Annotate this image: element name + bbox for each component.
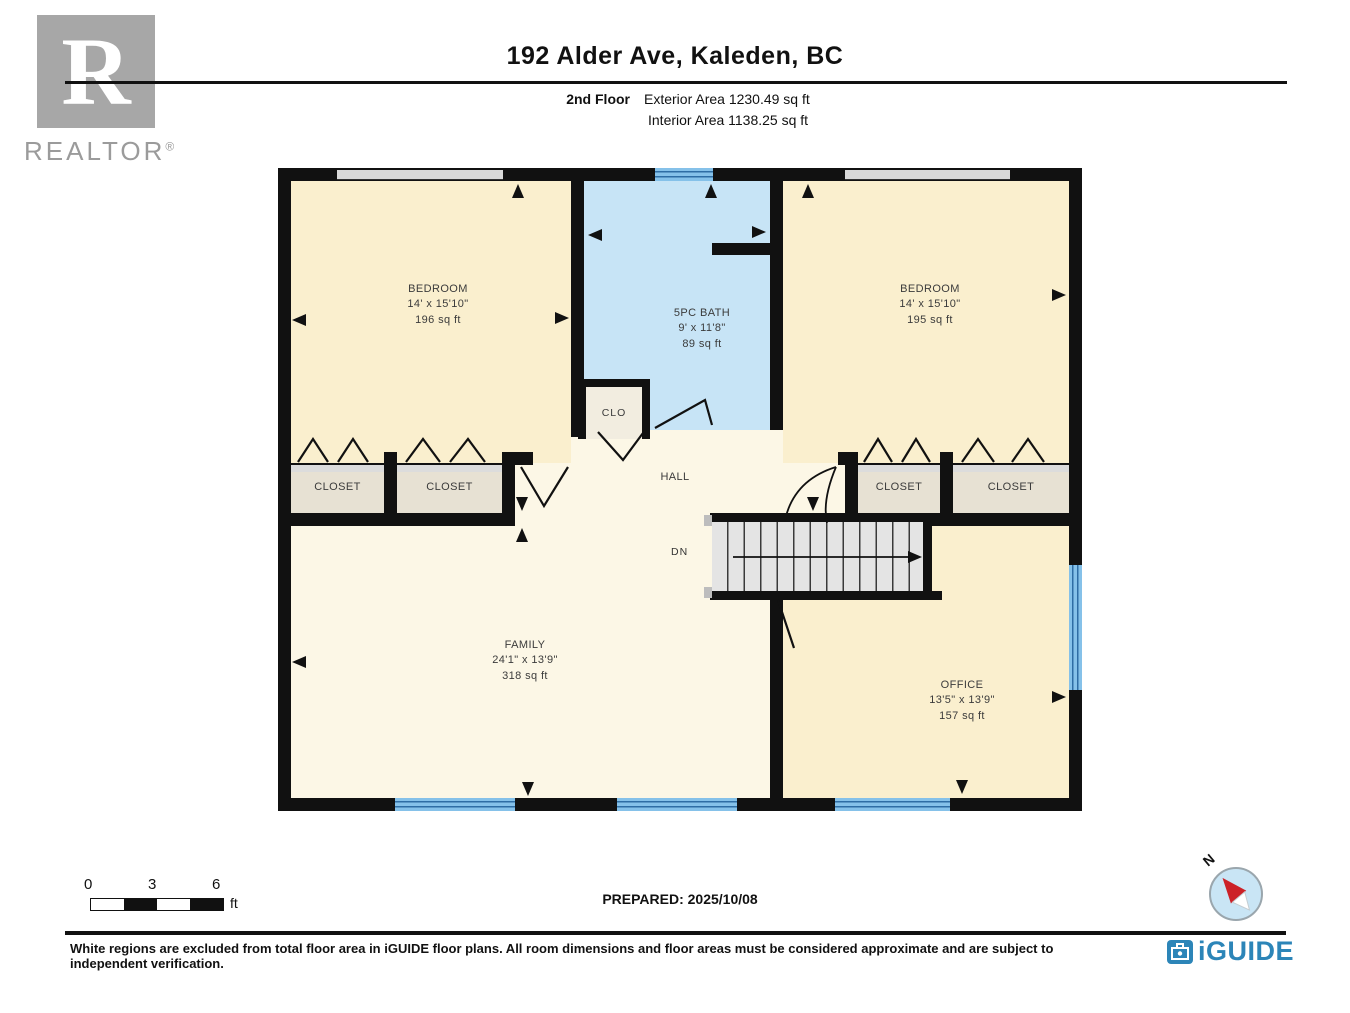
iguide-wordmark: iGUIDE <box>1198 936 1294 967</box>
scale-unit: ft <box>230 895 238 911</box>
exterior-area: Exterior Area 1230.49 sq ft <box>644 91 810 107</box>
measure-arrow <box>807 497 819 511</box>
measure-arrow <box>555 312 569 324</box>
scale-segment <box>190 899 223 910</box>
bifold-door-icon <box>864 439 930 462</box>
door-swing <box>778 600 794 648</box>
header-divider <box>65 81 1287 84</box>
bifold-door-icon <box>406 439 485 462</box>
scale-segment <box>91 899 124 910</box>
door-swing <box>826 467 836 523</box>
compass: N <box>1192 845 1276 934</box>
measure-arrow <box>956 780 968 794</box>
prepared-date: PREPARED: 2025/10/08 <box>278 891 1082 907</box>
measure-arrow <box>802 184 814 198</box>
measure-arrow <box>1052 289 1066 301</box>
scale-bar <box>90 898 224 911</box>
measure-arrow <box>752 226 766 238</box>
stairs-down-label: DN <box>671 546 703 558</box>
measure-arrow <box>512 184 524 198</box>
label-closet-3: CLOSET <box>858 480 940 495</box>
door-swing <box>655 400 712 428</box>
door-swing <box>521 467 568 506</box>
bifold-door-icon <box>962 439 1044 462</box>
label-family: FAMILY 24'1" x 13'9" 318 sq ft <box>425 638 625 684</box>
measure-arrow <box>705 184 717 198</box>
label-bedroom-right: BEDROOM 14' x 15'10" 195 sq ft <box>830 282 1030 328</box>
realtor-logo: R <box>37 15 155 128</box>
scale-segment <box>157 899 190 910</box>
label-bedroom-left: BEDROOM 14' x 15'10" 196 sq ft <box>338 282 538 328</box>
footer-divider <box>65 931 1286 935</box>
iguide-logo: iGUIDE <box>1166 936 1294 967</box>
bifold-door-icon <box>298 439 368 462</box>
label-closet-1: CLOSET <box>291 480 384 495</box>
stair-arrow-head <box>908 551 922 563</box>
floor-plan: CLO DN <box>278 168 1082 811</box>
measure-arrow <box>516 528 528 542</box>
iguide-icon <box>1166 938 1194 966</box>
measure-arrow <box>516 497 528 511</box>
label-bath: 5PC BATH 9' x 11'8" 89 sq ft <box>602 306 802 352</box>
realtor-logo-letter: R <box>61 24 130 120</box>
floor-label: 2nd Floor <box>520 91 630 107</box>
scale-tick-3: 3 <box>148 876 156 893</box>
measure-arrow <box>292 314 306 326</box>
scale-segment <box>124 899 157 910</box>
label-closet-2: CLOSET <box>397 480 502 495</box>
door-swing <box>598 432 643 460</box>
label-hall: HALL <box>625 470 725 485</box>
page-title: 192 Alder Ave, Kaleden, BC <box>275 42 1075 71</box>
interior-area: Interior Area 1138.25 sq ft <box>648 112 808 128</box>
compass-north-label: N <box>1200 851 1218 870</box>
scale-tick-6: 6 <box>212 876 220 893</box>
disclaimer-text: White regions are excluded from total fl… <box>70 941 1130 971</box>
label-office: OFFICE 13'5" x 13'9" 157 sq ft <box>862 678 1062 724</box>
label-closet-4: CLOSET <box>953 480 1069 495</box>
scale-tick-0: 0 <box>84 876 92 893</box>
measure-arrow <box>292 656 306 668</box>
measure-arrow <box>522 782 534 796</box>
measure-arrow <box>588 229 602 241</box>
registered-mark: ® <box>165 139 177 153</box>
realtor-logo-text: REALTOR® <box>24 136 184 167</box>
